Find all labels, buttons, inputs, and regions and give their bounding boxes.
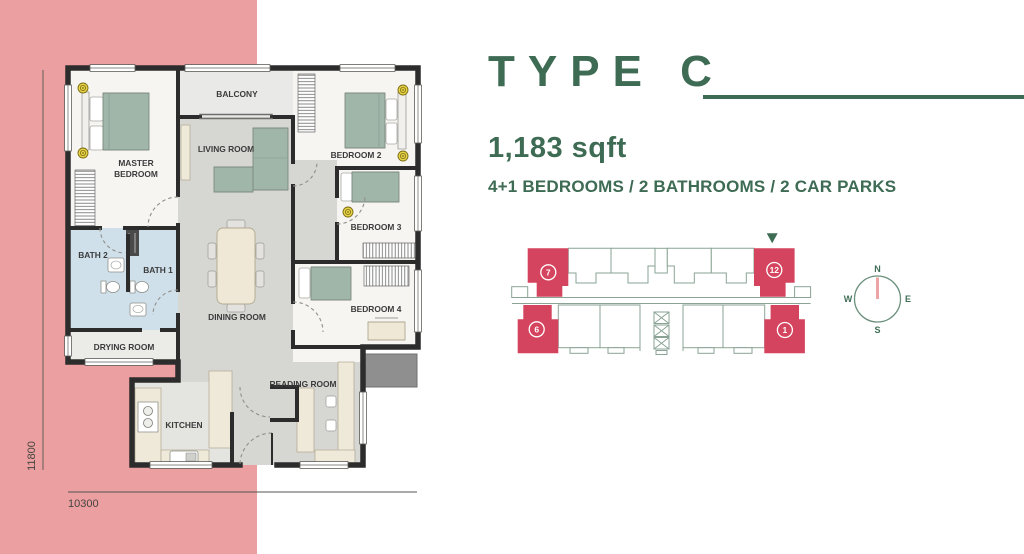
unit-area: 1,183 sqft (488, 132, 627, 165)
pillow (90, 97, 103, 121)
ac-ledge (364, 354, 417, 387)
unit-specs: 4+1 BEDROOMS / 2 BATHROOMS / 2 CAR PARKS (488, 177, 896, 197)
brochure-page: MASTER BEDROOM BALCONY LIVING ROOM BEDRO… (0, 0, 1024, 554)
reading-desk (315, 450, 355, 463)
room-label-bedroom4: BEDROOM 4 (351, 304, 402, 314)
compass-w: W (844, 294, 853, 304)
room-label-bath2: BATH 2 (78, 250, 108, 260)
compass-s: S (874, 325, 880, 335)
kitchen-counter (209, 371, 232, 448)
reading-desk (338, 362, 354, 454)
room-label-master-line2: BEDROOM (114, 169, 158, 179)
room-label-bath1: BATH 1 (143, 265, 173, 275)
dining-table (217, 228, 255, 304)
tv-console (181, 125, 190, 180)
pillow (341, 173, 352, 201)
sofa-chaise (214, 167, 253, 192)
room-label-bedroom3: BEDROOM 3 (351, 222, 402, 232)
bedroom2-headboard (398, 92, 406, 149)
title-underline (703, 95, 1024, 99)
room-label-living: LIVING ROOM (198, 144, 254, 154)
bedroom4-desk (368, 322, 405, 340)
dining-chair (227, 304, 245, 312)
pillow (386, 123, 397, 144)
sink (130, 303, 146, 316)
desk-chair (326, 396, 336, 407)
compass-e: E (905, 294, 911, 304)
sink (108, 258, 124, 272)
compass-n: N (874, 264, 881, 274)
dimension-width-label: 10300 (68, 498, 99, 510)
bedroom4-bed (311, 267, 351, 300)
pillow (386, 99, 397, 120)
unit-type-title: TYPE C (488, 50, 725, 94)
bedroom3-bed (352, 172, 399, 202)
master-bed (103, 93, 149, 150)
dining-chair (256, 243, 264, 259)
room-label-drying: DRYING ROOM (94, 342, 155, 352)
bedroom3-wardrobe (363, 243, 416, 258)
room-label-master-line1: MASTER (118, 158, 153, 168)
toilet (101, 281, 106, 293)
room-label-kitchen: KITCHEN (165, 420, 202, 430)
room-label-reading: READING ROOM (270, 379, 337, 389)
room-label-bedroom2: BEDROOM 2 (331, 150, 382, 160)
master-bed-headboard (82, 92, 89, 150)
sofa (253, 128, 288, 190)
master-wardrobe (75, 170, 95, 226)
dining-chair (208, 243, 216, 259)
compass: N E S W (840, 255, 920, 345)
toilet (130, 281, 135, 293)
unit-marker-7: 7 (546, 267, 551, 277)
pillow (90, 126, 103, 150)
key-plan: 7 12 6 1 (500, 226, 830, 371)
room-label-dining: DINING ROOM (208, 312, 266, 322)
key-plan-triangle-marker (767, 233, 778, 243)
reading-desk (297, 388, 314, 452)
unit-marker-6: 6 (534, 324, 539, 334)
dining-chair (256, 271, 264, 287)
room-label-balcony: BALCONY (216, 89, 258, 99)
dining-chair (227, 220, 245, 228)
unit-marker-12: 12 (770, 265, 780, 275)
pillow (299, 268, 310, 298)
bedroom2-wardrobe (298, 74, 315, 132)
dining-chair (208, 271, 216, 287)
floor-plan: MASTER BEDROOM BALCONY LIVING ROOM BEDRO… (0, 0, 470, 554)
dimension-height-label: 11800 (26, 441, 38, 471)
desk-chair (326, 420, 336, 431)
unit-marker-1: 1 (783, 325, 788, 335)
bedroom4-wardrobe (364, 266, 409, 286)
